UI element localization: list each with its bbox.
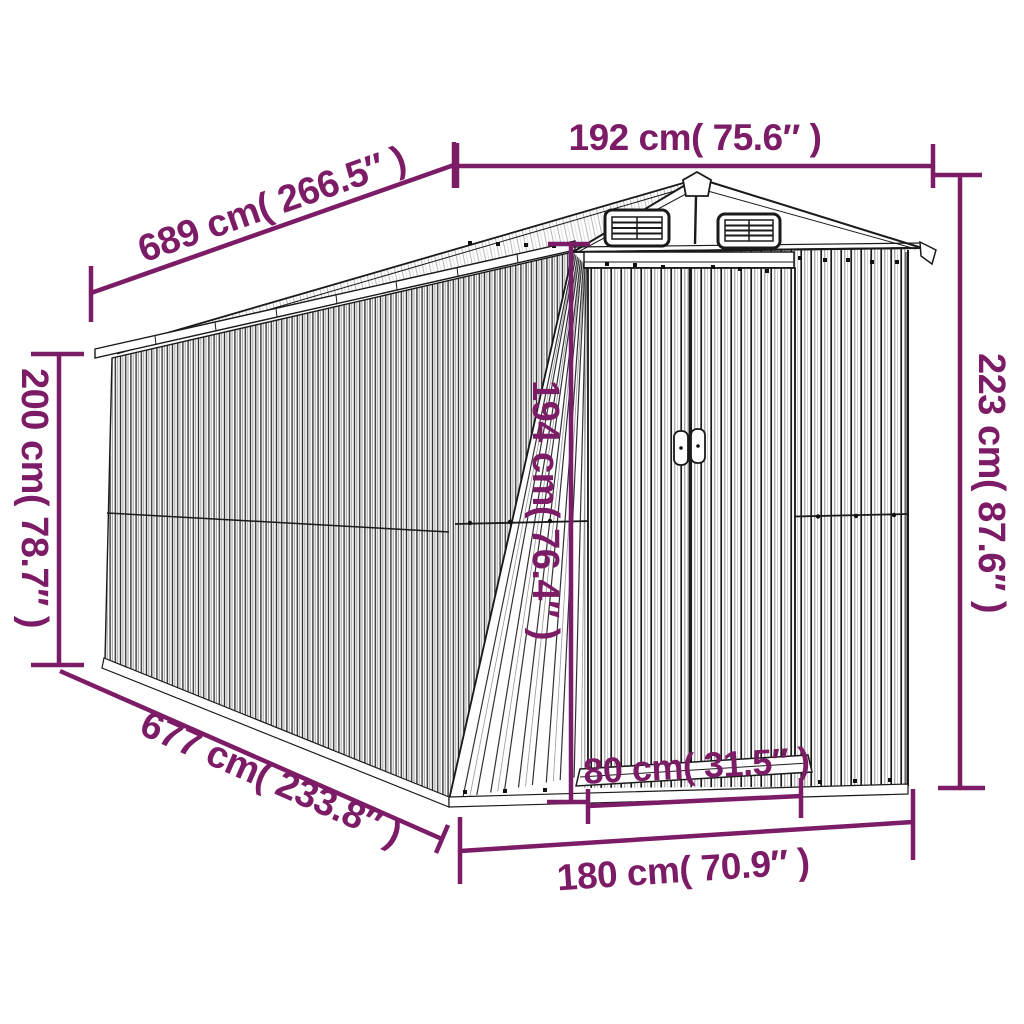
dim-door-height-label: 194 cm( 76.4″ ): [524, 380, 566, 640]
eave-corner-bracket: [920, 242, 936, 264]
gable-vent-left: [605, 210, 669, 246]
dim-side-height-label: 200 cm( 78.7″ ): [13, 368, 55, 628]
dim-total-height-label: 223 cm( 87.6″ ): [970, 353, 1012, 613]
doors: [588, 262, 795, 770]
gable-vent-right: [718, 214, 780, 248]
dim-front-width-label: 192 cm( 75.6″ ): [569, 117, 822, 158]
gable-center-seam: [695, 196, 696, 244]
roof-finial: [683, 172, 711, 196]
dim-base-width-label: 180 cm( 70.9″ ): [556, 841, 811, 899]
shed-dimension-diagram: 192 cm( 75.6″ ) 689 cm( 266.5″ ) 200 cm(…: [0, 0, 1024, 1024]
door-track: [584, 252, 794, 268]
diagram-canvas: 192 cm( 75.6″ ) 689 cm( 266.5″ ) 200 cm(…: [0, 0, 1024, 1024]
dim-roof-length-label: 689 cm( 266.5″ ): [133, 138, 412, 271]
